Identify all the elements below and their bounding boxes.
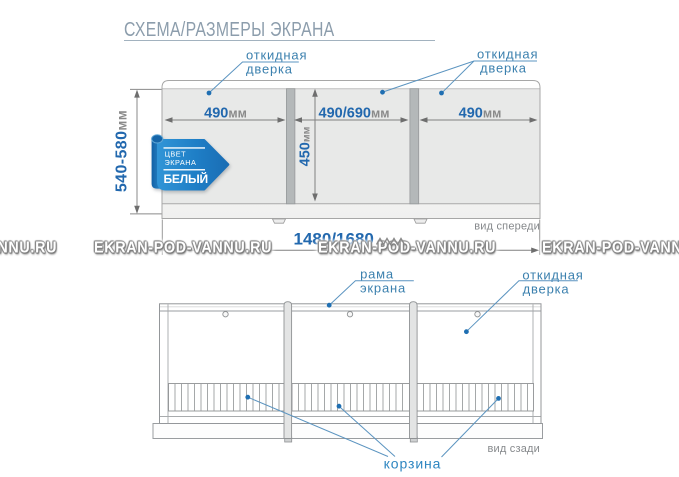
svg-text:рама: рама — [360, 266, 394, 281]
svg-text:вид спереди: вид спереди — [474, 221, 540, 233]
svg-text:490мм: 490мм — [204, 105, 247, 121]
svg-text:дверка: дверка — [480, 61, 527, 76]
svg-text:вид сзади: вид сзади — [488, 443, 541, 455]
svg-text:корзина: корзина — [384, 456, 442, 472]
svg-text:дверка: дверка — [246, 62, 293, 77]
svg-text:490/690мм: 490/690мм — [319, 105, 390, 121]
svg-text:450мм: 450мм — [298, 126, 314, 166]
svg-text:ЭКРАНА: ЭКРАНА — [165, 158, 197, 167]
svg-text:дверка: дверка — [523, 281, 570, 296]
svg-text:540-580мм: 540-580мм — [114, 110, 131, 192]
svg-text:откидная: откидная — [246, 48, 307, 63]
svg-text:экрана: экрана — [360, 280, 406, 295]
svg-text:490мм: 490мм — [459, 105, 502, 121]
svg-text:откидная: откидная — [477, 47, 538, 62]
svg-text:ЦВЕТ: ЦВЕТ — [165, 149, 187, 158]
svg-text:БЕЛЫЙ: БЕЛЫЙ — [164, 171, 208, 186]
svg-text:откидная: откидная — [522, 267, 583, 282]
